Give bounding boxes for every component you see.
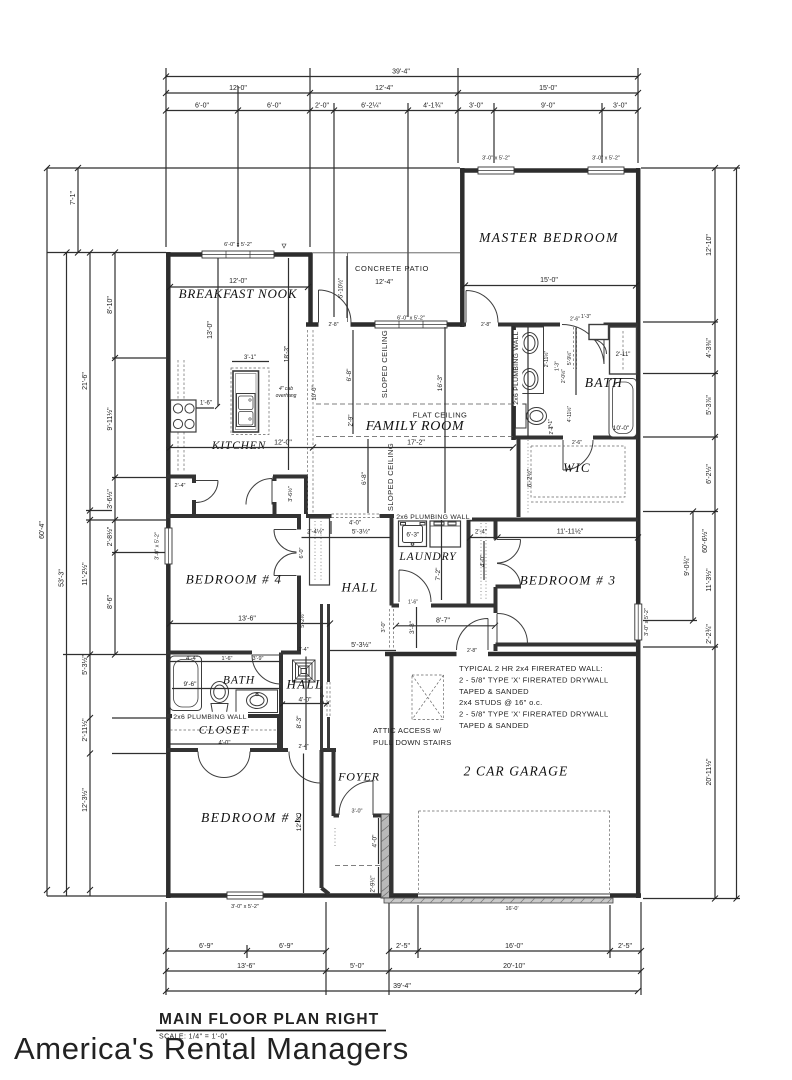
svg-text:9'-11½": 9'-11½" — [106, 407, 114, 431]
svg-text:WIC: WIC — [563, 460, 591, 475]
svg-text:16'-0': 16'-0' — [505, 906, 518, 912]
svg-text:BREAKFAST NOOK: BREAKFAST NOOK — [179, 286, 298, 301]
svg-text:16'-0": 16'-0" — [505, 943, 523, 950]
svg-text:5'-3½": 5'-3½" — [351, 641, 371, 649]
svg-text:39'-4": 39'-4" — [392, 69, 410, 76]
svg-text:4'-3⅜": 4'-3⅜" — [706, 338, 713, 358]
svg-text:16'-3": 16'-3" — [437, 374, 444, 391]
svg-text:20'-11½": 20'-11½" — [705, 758, 713, 786]
svg-text:3'-6½": 3'-6½" — [106, 489, 114, 509]
svg-text:2'-6": 2'-6" — [570, 317, 580, 323]
svg-text:3'-0": 3'-0" — [352, 809, 363, 815]
svg-text:2x6 PLUMBING WALL: 2x6 PLUMBING WALL — [173, 714, 247, 721]
svg-text:10'-0": 10'-0" — [312, 385, 318, 400]
svg-text:BEDROOM # 4: BEDROOM # 4 — [186, 572, 283, 587]
svg-text:5'-0": 5'-0" — [350, 963, 364, 970]
svg-text:6'-8": 6'-8" — [346, 368, 353, 382]
svg-text:3'-8": 3'-8" — [409, 620, 416, 634]
svg-text:ATTIC ACCESS w/: ATTIC ACCESS w/ — [373, 726, 442, 735]
svg-text:3'-0" x 5'-2": 3'-0" x 5'-2" — [231, 904, 259, 910]
svg-text:BATH: BATH — [585, 375, 623, 390]
svg-text:12'-4": 12'-4" — [375, 279, 393, 286]
svg-text:6'-2½": 6'-2½" — [526, 468, 534, 487]
svg-text:BATH: BATH — [223, 675, 255, 687]
svg-text:60'-4": 60'-4" — [39, 521, 46, 539]
svg-text:2 - 5/8" TYPE 'X' FIRERATED DR: 2 - 5/8" TYPE 'X' FIRERATED DRYWALL — [459, 675, 609, 684]
svg-text:TAPED & SANDED: TAPED & SANDED — [459, 687, 529, 696]
svg-text:4'-0": 4'-0" — [349, 521, 361, 527]
svg-text:12'-0": 12'-0" — [296, 814, 303, 831]
svg-text:2'-11½": 2'-11½" — [81, 718, 89, 742]
svg-text:20'-10": 20'-10" — [503, 963, 525, 970]
svg-text:6'-9": 6'-9" — [279, 943, 293, 950]
svg-text:10'-0": 10'-0" — [613, 425, 630, 432]
svg-text:BEDROOM # 3: BEDROOM # 3 — [520, 573, 617, 588]
svg-text:2'-4": 2'-4" — [299, 647, 309, 653]
svg-text:2'-8": 2'-8" — [481, 322, 491, 328]
svg-text:11'-3½": 11'-3½" — [705, 568, 713, 592]
svg-text:2x6 PLUMBING WALL: 2x6 PLUMBING WALL — [513, 331, 520, 405]
svg-text:2'-9½": 2'-9½" — [370, 876, 377, 893]
svg-text:2'-5": 2'-5" — [396, 943, 410, 950]
svg-text:3'-0": 3'-0" — [613, 103, 627, 110]
svg-text:6'-9": 6'-9" — [199, 943, 213, 950]
svg-text:8'-6": 8'-6" — [107, 595, 114, 609]
svg-text:15'-0": 15'-0" — [540, 277, 558, 284]
svg-text:6'-0": 6'-0" — [195, 103, 209, 110]
svg-text:12'-3½": 12'-3½" — [81, 788, 89, 812]
svg-text:FAMILY ROOM: FAMILY ROOM — [365, 419, 465, 434]
svg-text:2'-4": 2'-4" — [175, 483, 186, 489]
svg-text:KITCHEN: KITCHEN — [211, 440, 267, 452]
svg-text:HALL: HALL — [341, 580, 379, 595]
svg-text:4" cab: 4" cab — [279, 386, 293, 392]
svg-text:6'-0" x 5'-2": 6'-0" x 5'-2" — [397, 316, 425, 322]
svg-text:3'-0" x 5'-2": 3'-0" x 5'-2" — [482, 156, 510, 162]
svg-text:8'-7": 8'-7" — [436, 618, 450, 625]
svg-text:SLOPED CEILING: SLOPED CEILING — [386, 443, 395, 511]
svg-text:2'-4": 2'-4" — [475, 530, 487, 536]
svg-text:2'-11½": 2'-11½" — [543, 351, 550, 368]
svg-text:MAIN FLOOR PLAN RIGHT: MAIN FLOOR PLAN RIGHT — [159, 1011, 379, 1028]
svg-text:2'-0": 2'-0" — [320, 692, 326, 703]
svg-text:2'-4½": 2'-4½" — [307, 529, 324, 536]
svg-text:3'-0" x 5'-2": 3'-0" x 5'-2" — [155, 532, 161, 560]
svg-text:6'-0" x 5'-2": 6'-0" x 5'-2" — [224, 242, 252, 248]
svg-text:5'-10½": 5'-10½" — [338, 278, 345, 298]
svg-text:2'-11": 2'-11" — [616, 352, 631, 358]
svg-text:17'-2": 17'-2" — [407, 440, 425, 447]
svg-text:3'-0": 3'-0" — [469, 103, 483, 110]
svg-text:13'-0": 13'-0" — [207, 321, 214, 339]
svg-text:BEDROOM # 2: BEDROOM # 2 — [201, 810, 303, 825]
svg-text:2'-0½": 2'-0½" — [560, 369, 567, 383]
svg-text:4'-0": 4'-0" — [299, 697, 313, 704]
svg-text:4'-1¾": 4'-1¾" — [423, 103, 443, 110]
svg-text:18'-3": 18'-3" — [284, 345, 291, 362]
svg-text:5'-3½": 5'-3½" — [81, 655, 89, 675]
svg-text:1'-3": 1'-3" — [581, 314, 591, 320]
svg-text:MASTER BEDROOM: MASTER BEDROOM — [478, 230, 619, 245]
svg-text:2'-1": 2'-1" — [548, 419, 554, 429]
svg-text:13'-6": 13'-6" — [238, 616, 256, 623]
svg-text:6'-3": 6'-3" — [406, 532, 420, 539]
svg-text:1'-6": 1'-6" — [408, 600, 418, 606]
svg-text:FLAT CEILING: FLAT CEILING — [413, 411, 468, 420]
svg-text:HALL: HALL — [286, 677, 324, 692]
svg-text:TAPED & SANDED: TAPED & SANDED — [459, 721, 529, 730]
svg-text:2'-6": 2'-6" — [572, 440, 582, 446]
svg-text:12'-10": 12'-10" — [706, 234, 713, 256]
svg-text:2 - 5/8" TYPE 'X' FIRERATED DR: 2 - 5/8" TYPE 'X' FIRERATED DRYWALL — [459, 710, 609, 719]
svg-text:1'-3": 1'-3" — [555, 361, 561, 371]
svg-text:TYPICAL 2 HR 2x4 FIRERATED WAL: TYPICAL 2 HR 2x4 FIRERATED WALL: — [459, 664, 603, 673]
svg-text:6'-2½": 6'-2½" — [705, 464, 713, 484]
svg-text:9'-0¾": 9'-0¾" — [684, 556, 691, 576]
svg-text:21'-6": 21'-6" — [82, 372, 89, 390]
svg-text:2 CAR GARAGE: 2 CAR GARAGE — [464, 764, 569, 779]
svg-text:15'-0": 15'-0" — [539, 85, 557, 92]
svg-text:39'-4": 39'-4" — [393, 983, 411, 990]
svg-text:11'-2½": 11'-2½" — [81, 562, 89, 586]
svg-text:LAUNDRY: LAUNDRY — [398, 551, 457, 563]
svg-text:8'-10": 8'-10" — [107, 296, 114, 314]
svg-text:60'-6½": 60'-6½" — [701, 529, 709, 553]
svg-text:2'-8": 2'-8" — [329, 322, 339, 328]
svg-text:CONCRETE PATIO: CONCRETE PATIO — [355, 264, 429, 273]
svg-text:7'-1": 7'-1" — [70, 191, 77, 205]
svg-text:5'-2½": 5'-2½" — [299, 612, 306, 628]
svg-text:3'-0" x 5'-2": 3'-0" x 5'-2" — [592, 156, 620, 162]
svg-text:2x4 STUDS @ 16" o.c.: 2x4 STUDS @ 16" o.c. — [459, 698, 543, 707]
svg-text:9'-6": 9'-6" — [184, 681, 198, 688]
svg-text:13'-6": 13'-6" — [237, 963, 255, 970]
svg-text:5'-3½": 5'-3½" — [352, 528, 371, 536]
svg-text:5'-9½": 5'-9½" — [566, 351, 573, 365]
svg-text:2x6 PLUMBING WALL: 2x6 PLUMBING WALL — [396, 514, 470, 521]
svg-text:12'-0": 12'-0" — [274, 440, 292, 447]
svg-text:FOYER: FOYER — [337, 770, 380, 784]
svg-text:2'-4": 2'-4" — [299, 744, 309, 750]
svg-text:53'-3": 53'-3" — [59, 569, 66, 587]
svg-text:overhang: overhang — [276, 393, 297, 399]
svg-text:5'-3⅞": 5'-3⅞" — [706, 395, 713, 415]
svg-text:2'-0": 2'-0" — [315, 103, 329, 110]
svg-text:8'-3": 8'-3" — [296, 715, 303, 729]
svg-text:2'-5": 2'-5" — [618, 943, 632, 950]
svg-text:3'-1": 3'-1" — [244, 355, 256, 361]
svg-text:12'-4": 12'-4" — [375, 85, 393, 92]
svg-text:3'-0" x 5'-2": 3'-0" x 5'-2" — [644, 608, 650, 636]
svg-text:2'-8½": 2'-8½" — [106, 526, 114, 546]
svg-text:6'-0": 6'-0" — [267, 103, 281, 110]
svg-text:America's Rental Managers: America's Rental Managers — [14, 1031, 409, 1066]
svg-text:6'-2¼": 6'-2¼" — [361, 103, 381, 110]
svg-text:6'-0": 6'-0" — [299, 547, 305, 558]
svg-text:12'-0": 12'-0" — [229, 278, 247, 285]
svg-text:4'-0": 4'-0" — [372, 834, 379, 848]
svg-text:SLOPED CEILING: SLOPED CEILING — [380, 330, 389, 398]
svg-text:CLOSET: CLOSET — [199, 723, 250, 737]
svg-text:11'-11½": 11'-11½" — [557, 528, 584, 536]
svg-text:9'-0": 9'-0" — [541, 103, 555, 110]
svg-text:3'-0": 3'-0" — [381, 621, 387, 632]
svg-text:1'-6": 1'-6" — [200, 401, 212, 407]
svg-text:3'-6½": 3'-6½" — [287, 486, 294, 502]
svg-text:2'-2¾": 2'-2¾" — [706, 624, 713, 644]
svg-text:12'-0": 12'-0" — [229, 85, 247, 92]
svg-text:2'-8": 2'-8" — [467, 648, 477, 654]
svg-text:4'-11½": 4'-11½" — [566, 406, 573, 423]
svg-text:6'-8": 6'-8" — [361, 471, 368, 485]
svg-text:PULL DOWN STAIRS: PULL DOWN STAIRS — [373, 738, 452, 747]
